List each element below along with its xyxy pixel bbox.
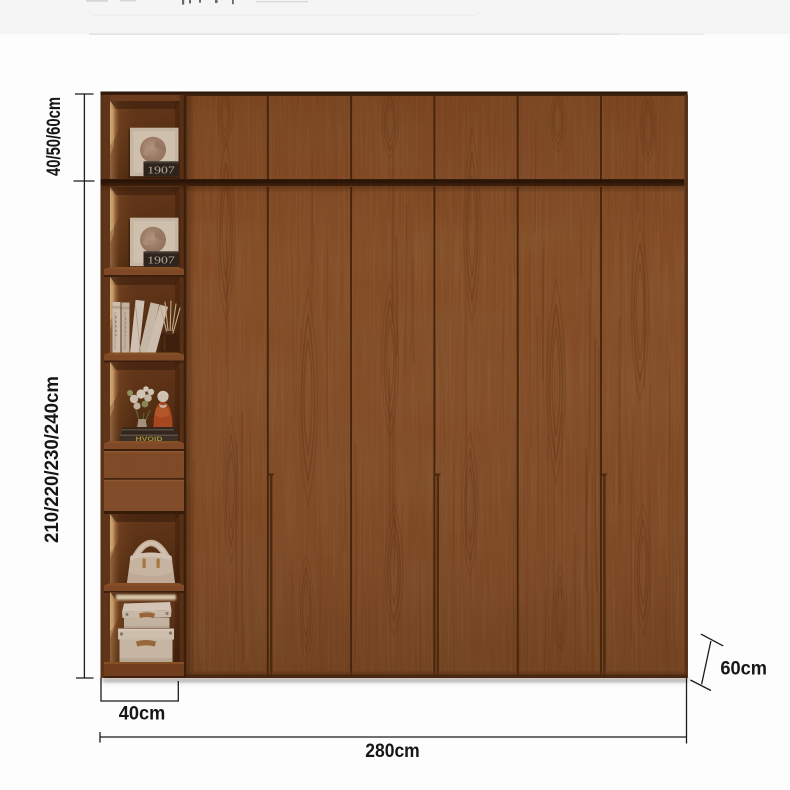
svg-text:280cm: 280cm: [365, 741, 420, 762]
svg-text:40/50/60cm: 40/50/60cm: [44, 97, 65, 176]
svg-text:60cm: 60cm: [720, 658, 767, 679]
svg-text:210/220/230/240cm: 210/220/230/240cm: [42, 376, 63, 543]
svg-text:40cm: 40cm: [119, 704, 166, 725]
